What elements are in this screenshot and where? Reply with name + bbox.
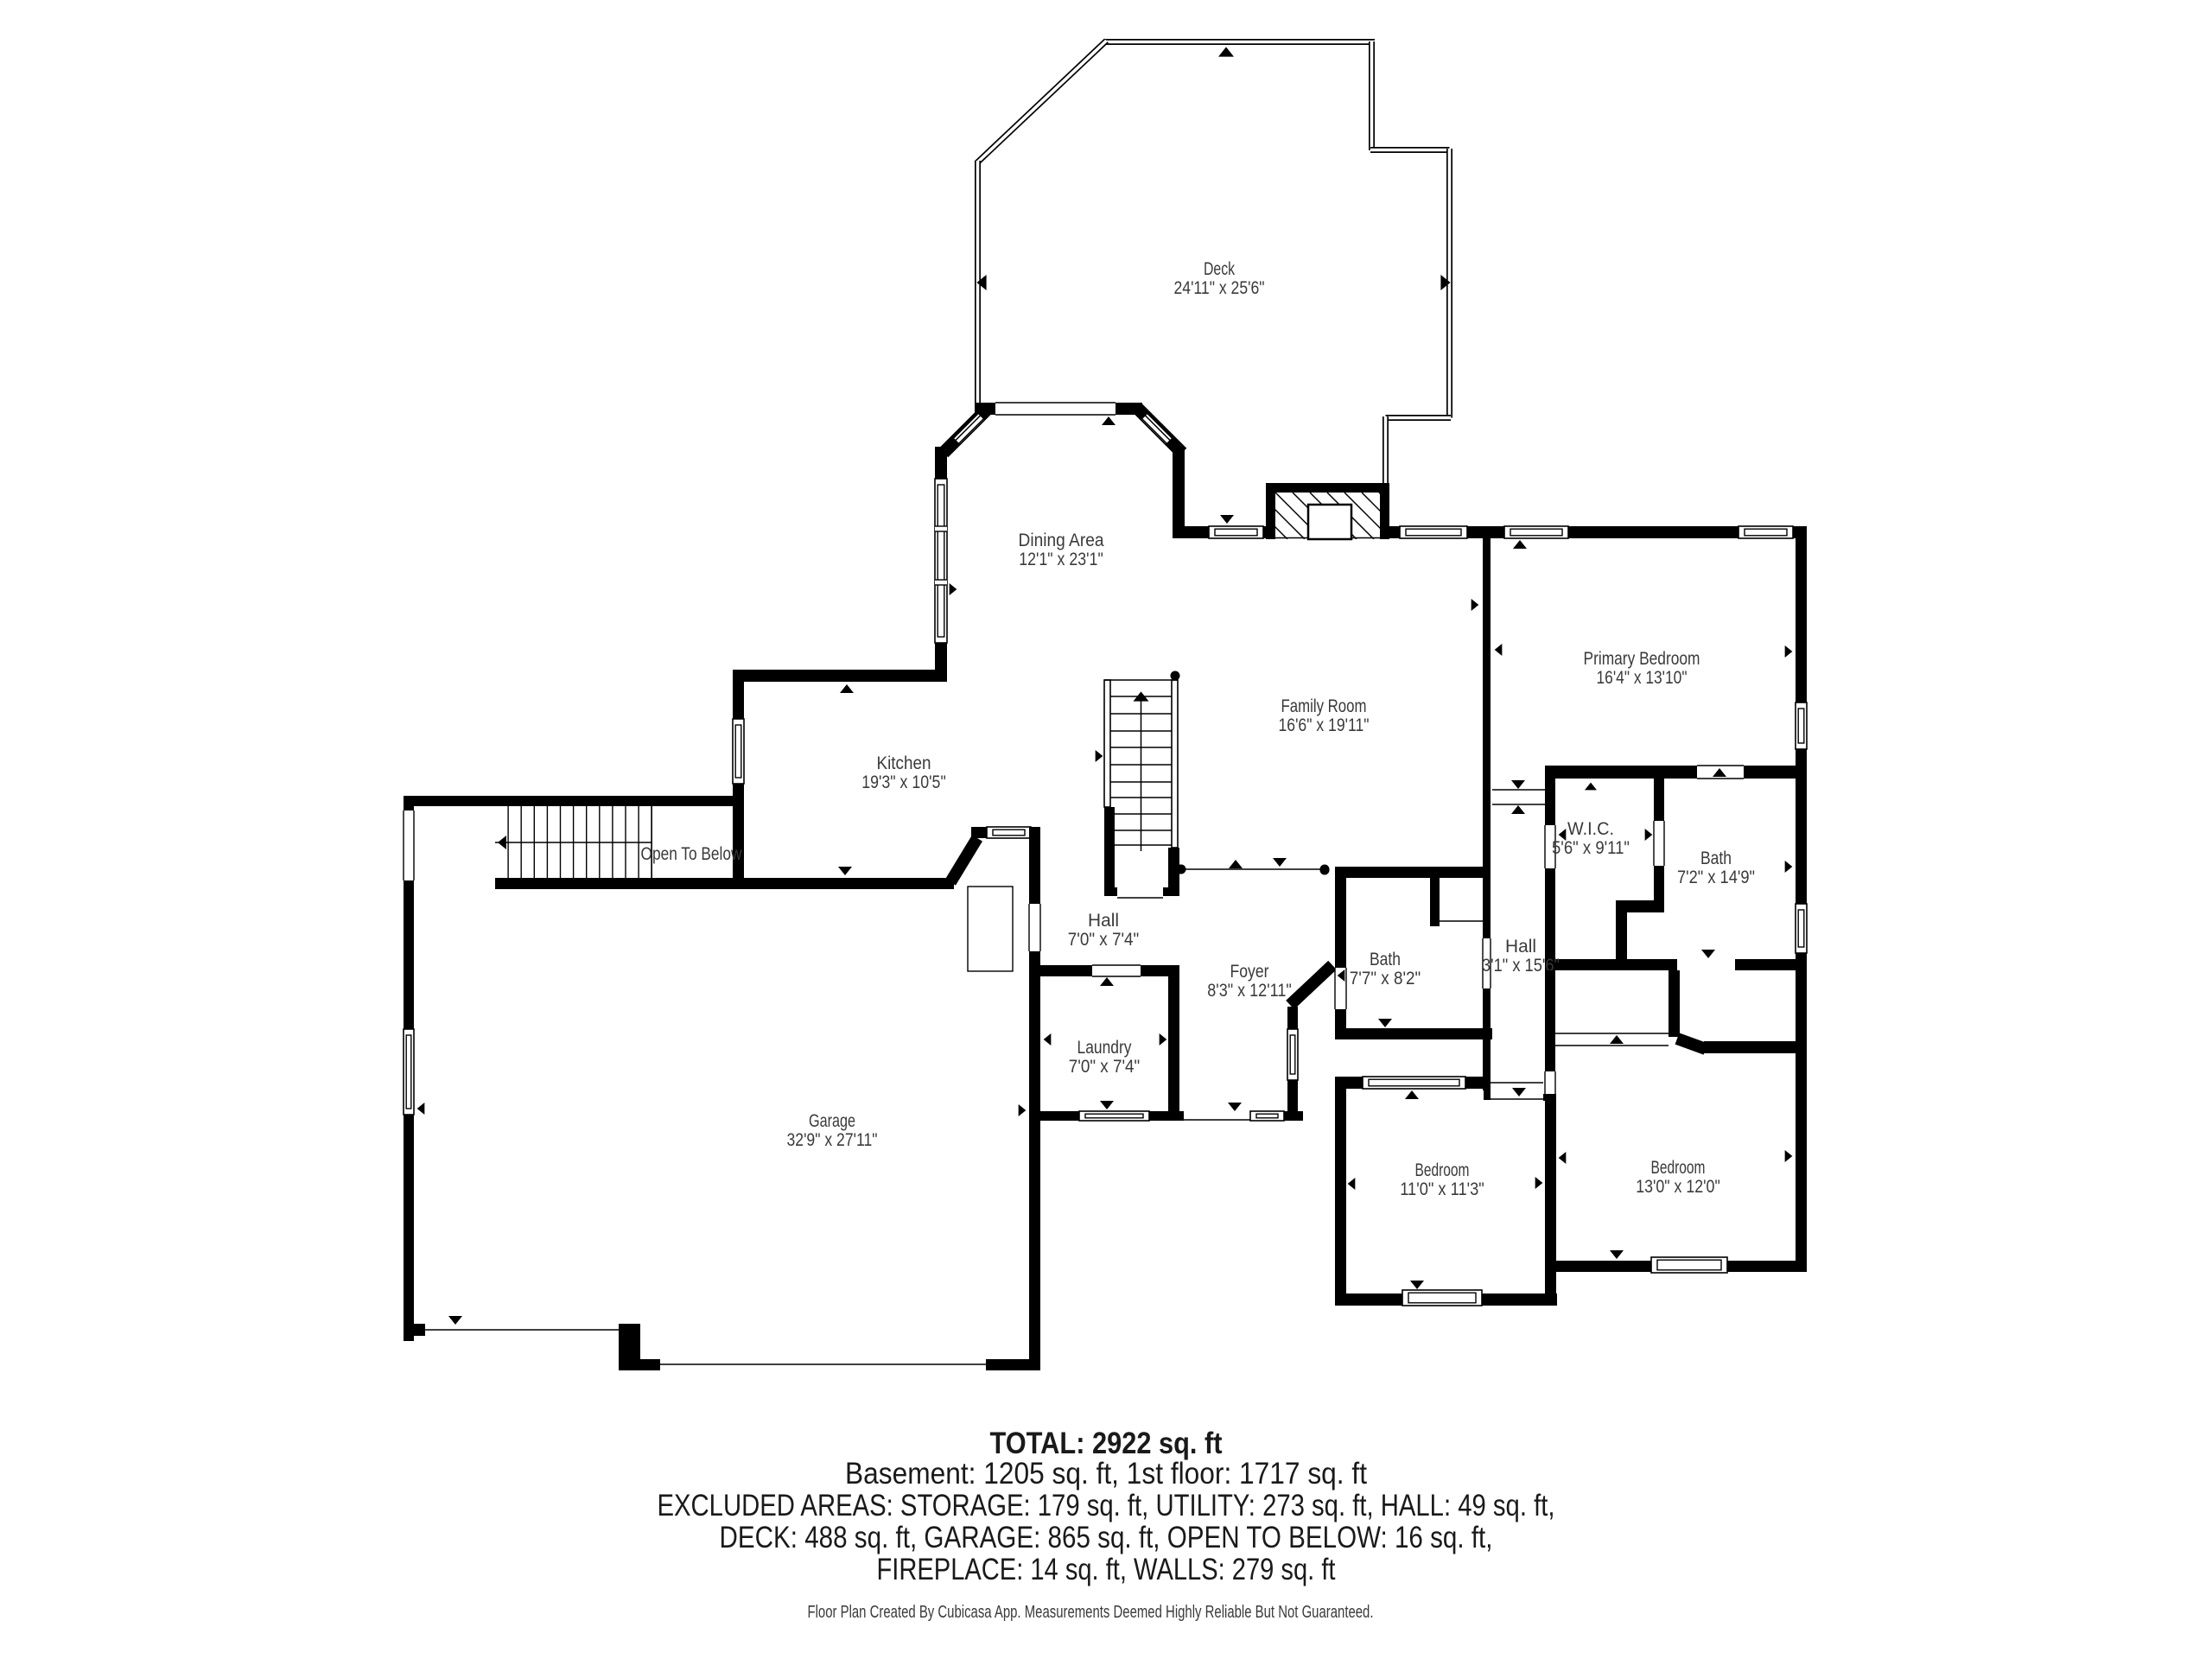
svg-text:Garage: Garage xyxy=(809,1111,855,1131)
svg-text:12'1" x 23'1": 12'1" x 23'1" xyxy=(1019,550,1103,569)
svg-text:16'6" x 19'11": 16'6" x 19'11" xyxy=(1279,715,1370,735)
svg-text:7'2" x 14'9": 7'2" x 14'9" xyxy=(1677,868,1755,887)
svg-text:7'0" x 7'4": 7'0" x 7'4" xyxy=(1069,1057,1141,1077)
svg-text:Bedroom: Bedroom xyxy=(1415,1160,1470,1180)
svg-text:Bath: Bath xyxy=(1700,849,1732,868)
svg-text:Family Room: Family Room xyxy=(1281,696,1367,716)
svg-text:7'7" x 8'2": 7'7" x 8'2" xyxy=(1350,969,1421,988)
svg-text:Floor Plan Created By Cubicasa: Floor Plan Created By Cubicasa App. Meas… xyxy=(808,1603,1374,1622)
svg-text:EXCLUDED AREAS: STORAGE: 179 s: EXCLUDED AREAS: STORAGE: 179 sq. ft, UTI… xyxy=(658,1489,1555,1522)
svg-text:Open To Below: Open To Below xyxy=(641,844,743,864)
svg-text:Foyer: Foyer xyxy=(1230,962,1269,982)
svg-text:Kitchen: Kitchen xyxy=(877,753,931,773)
svg-text:16'4" x 13'10": 16'4" x 13'10" xyxy=(1597,668,1688,688)
svg-text:8'3" x 12'11": 8'3" x 12'11" xyxy=(1207,981,1292,1001)
svg-text:5'6" x 9'11": 5'6" x 9'11" xyxy=(1552,838,1630,858)
svg-text:11'0" x 11'3": 11'0" x 11'3" xyxy=(1400,1179,1484,1199)
svg-text:19'3" x 10'5": 19'3" x 10'5" xyxy=(861,772,946,792)
svg-text:Dining Area: Dining Area xyxy=(1019,531,1104,550)
svg-text:FIREPLACE: 14 sq. ft, WALLS: 2: FIREPLACE: 14 sq. ft, WALLS: 279 sq. ft xyxy=(877,1553,1336,1586)
svg-text:Basement: 1205 sq. ft, 1st flo: Basement: 1205 sq. ft, 1st floor: 1717 s… xyxy=(845,1457,1367,1491)
svg-text:32'9" x 27'11": 32'9" x 27'11" xyxy=(787,1130,878,1150)
svg-text:Hall: Hall xyxy=(1088,911,1119,931)
svg-text:13'0" x 12'0": 13'0" x 12'0" xyxy=(1636,1177,1720,1197)
svg-text:DECK: 488 sq. ft, GARAGE: 865: DECK: 488 sq. ft, GARAGE: 865 sq. ft, OP… xyxy=(720,1521,1493,1554)
svg-text:7'0" x 7'4": 7'0" x 7'4" xyxy=(1068,930,1140,950)
svg-text:Deck: Deck xyxy=(1204,259,1235,279)
svg-text:Primary Bedroom: Primary Bedroom xyxy=(1584,649,1700,669)
svg-text:24'11" x 25'6": 24'11" x 25'6" xyxy=(1174,278,1265,298)
svg-text:Laundry: Laundry xyxy=(1077,1038,1132,1058)
svg-text:Hall: Hall xyxy=(1505,937,1536,957)
svg-text:W.I.C.: W.I.C. xyxy=(1567,819,1614,839)
svg-text:Bath: Bath xyxy=(1370,950,1401,969)
svg-text:TOTAL: 2922 sq. ft: TOTAL: 2922 sq. ft xyxy=(990,1427,1223,1460)
svg-text:Bedroom: Bedroom xyxy=(1651,1158,1706,1178)
